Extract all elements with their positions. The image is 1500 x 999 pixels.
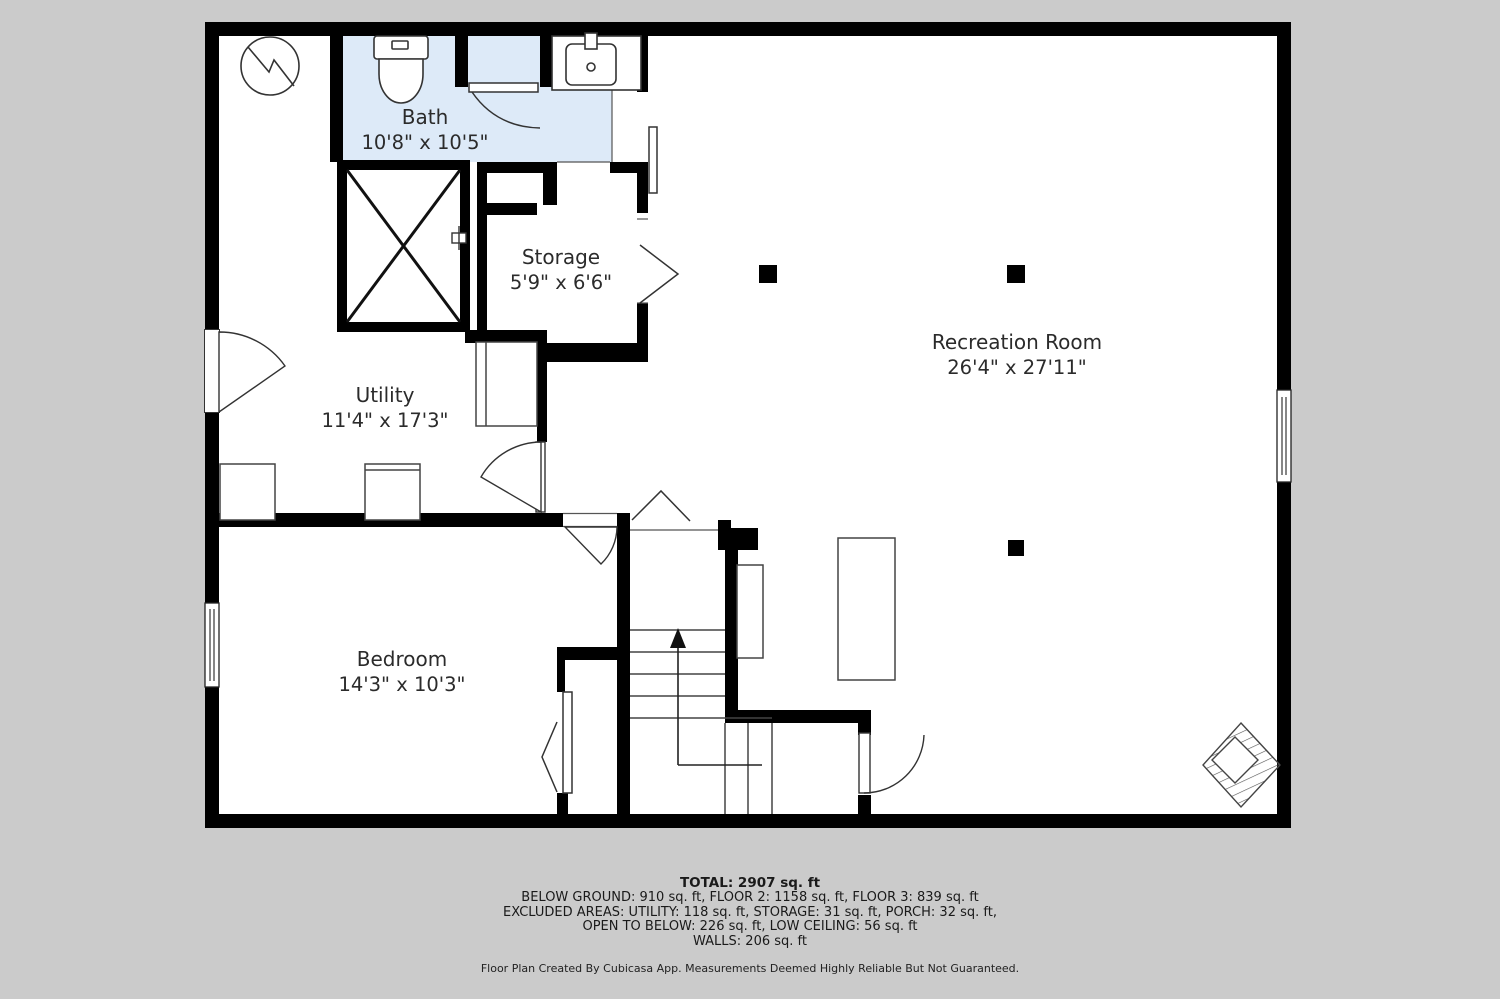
room-label-bath: Bath 10'8" x 10'5" xyxy=(305,105,545,155)
wall-stair-bottom xyxy=(725,710,871,723)
bedroom-door-gap xyxy=(563,513,617,527)
excluded-areas-text-1: EXCLUDED AREAS: UTILITY: 118 sq. ft, STO… xyxy=(0,906,1500,921)
wall-closet-stub-lower xyxy=(557,793,568,820)
room-name: Utility xyxy=(265,383,505,408)
column-1 xyxy=(759,265,777,283)
wall-utility-right xyxy=(537,362,547,442)
room-dims: 5'9" x 6'6" xyxy=(461,270,661,295)
wall-bath-closet-right xyxy=(540,22,553,87)
floor-plan-canvas: Bath 10'8" x 10'5" Storage 5'9" x 6'6" U… xyxy=(0,0,1500,999)
excluded-areas-text-2: OPEN TO BELOW: 226 sq. ft, LOW CEILING: … xyxy=(0,920,1500,935)
room-dims: 11'4" x 17'3" xyxy=(265,408,505,433)
exterior-door-gap xyxy=(205,330,219,412)
wall-storage-bottom xyxy=(537,343,648,362)
wall-outer-top xyxy=(205,22,1291,36)
column-2 xyxy=(1007,265,1025,283)
room-dims: 10'8" x 10'5" xyxy=(305,130,545,155)
room-name: Recreation Room xyxy=(867,330,1167,355)
disclaimer-text: Floor Plan Created By Cubicasa App. Meas… xyxy=(0,962,1500,975)
column-3 xyxy=(1008,540,1024,556)
wall-storage-alcove xyxy=(487,203,537,215)
room-name: Storage xyxy=(461,245,661,270)
total-area-text: TOTAL: 2907 sq. ft xyxy=(0,876,1500,891)
area-summary: TOTAL: 2907 sq. ft BELOW GROUND: 910 sq.… xyxy=(0,876,1500,975)
room-label-storage: Storage 5'9" x 6'6" xyxy=(461,245,661,295)
room-label-bedroom: Bedroom 14'3" x 10'3" xyxy=(282,647,522,697)
wall-outer-left xyxy=(205,22,219,828)
wall-bath-right-upper xyxy=(637,22,648,92)
wall-utility-shelf xyxy=(465,330,547,343)
wall-stairdoor-stub-bottom xyxy=(858,795,871,828)
room-label-utility: Utility 11'4" x 17'3" xyxy=(265,383,505,433)
shower-box xyxy=(337,160,470,332)
wall-bath-closet-left xyxy=(455,22,468,87)
floors-area-text: BELOW GROUND: 910 sq. ft, FLOOR 2: 1158 … xyxy=(0,891,1500,906)
wall-storage-nw-stub xyxy=(543,162,557,205)
wall-outer-right xyxy=(1277,22,1291,828)
wall-closet-top xyxy=(557,647,617,660)
walls-area-text: WALLS: 206 sq. ft xyxy=(0,935,1500,950)
room-name: Bedroom xyxy=(282,647,522,672)
wall-outer-bottom xyxy=(205,814,1291,828)
room-dims: 26'4" x 27'11" xyxy=(867,355,1167,380)
room-label-recreation: Recreation Room 26'4" x 27'11" xyxy=(867,330,1167,380)
wall-closet-stub-upper xyxy=(557,647,565,692)
wall-stairdoor-stub-top xyxy=(858,723,871,735)
room-dims: 14'3" x 10'3" xyxy=(282,672,522,697)
wall-bedroom-right xyxy=(617,513,630,828)
wall-rec-stub xyxy=(637,162,648,213)
room-name: Bath xyxy=(305,105,545,130)
wall-stair-right xyxy=(725,533,738,723)
